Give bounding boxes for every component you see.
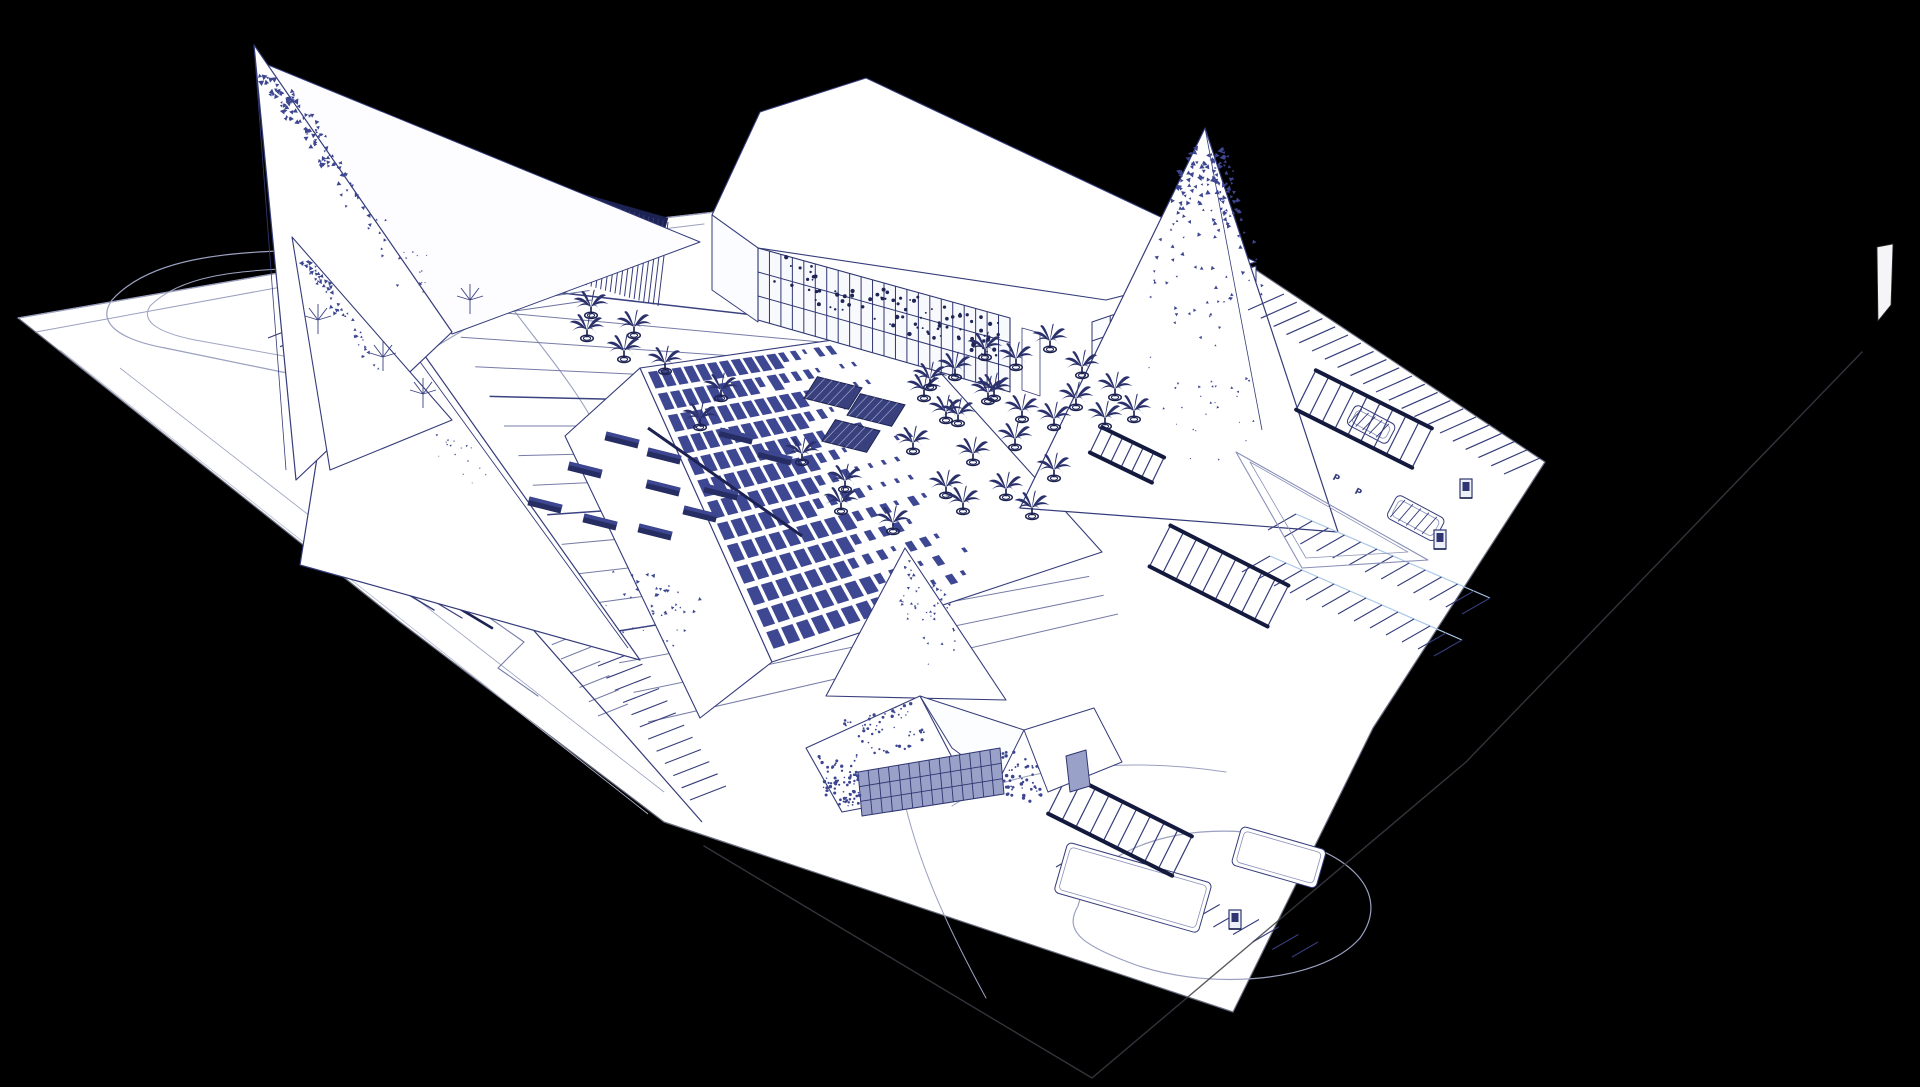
- site-booth: [1434, 530, 1446, 549]
- entry-door: [1022, 328, 1040, 396]
- site-booth: [1460, 479, 1472, 498]
- site-booth: [1229, 910, 1241, 929]
- site-rendering: PP♿: [0, 0, 1920, 1087]
- render-viewport[interactable]: PP♿: [0, 0, 1920, 1087]
- kiosk-glass: [1066, 750, 1090, 792]
- far-east-sliver: [1877, 244, 1893, 321]
